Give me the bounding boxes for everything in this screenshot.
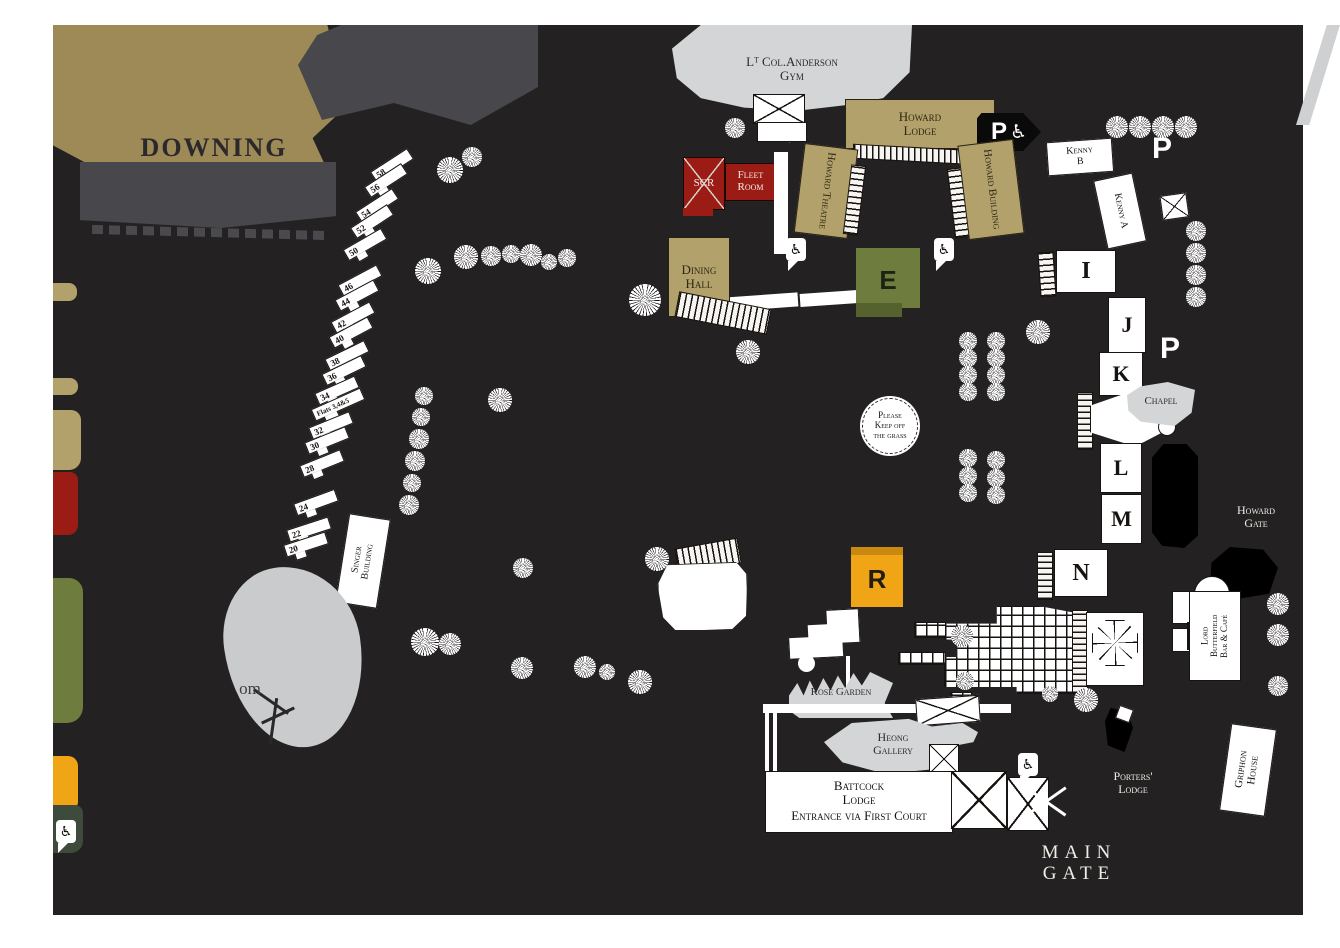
lamp-circle bbox=[798, 655, 815, 672]
tree bbox=[415, 258, 441, 284]
accessible-badge-e: ♿ bbox=[934, 238, 954, 261]
i-colonnade bbox=[1037, 251, 1056, 297]
tree bbox=[513, 558, 533, 578]
howard-lodge: Howard Lodge bbox=[845, 99, 995, 149]
parking-letter-mid: P bbox=[1160, 332, 1180, 366]
tree bbox=[558, 249, 576, 267]
tree bbox=[959, 449, 977, 467]
tree bbox=[488, 388, 512, 412]
path-vertical-double bbox=[765, 713, 777, 773]
butterfield: Lord Butterfield Bar & Café bbox=[1189, 591, 1241, 681]
tree bbox=[411, 628, 439, 656]
campus-map-page: DOWNING COLLEGE Lᵀ Col.Anderson Gym Howa… bbox=[0, 0, 1340, 948]
scr: SCR bbox=[683, 157, 725, 210]
tree bbox=[511, 657, 533, 679]
tree bbox=[959, 332, 977, 350]
tree bbox=[1186, 221, 1206, 241]
building-j: J bbox=[1108, 297, 1146, 353]
battcock-note: Entrance via First Court bbox=[775, 808, 943, 824]
chapel-label: Chapel bbox=[1127, 392, 1195, 412]
tree bbox=[959, 366, 977, 384]
tree bbox=[1186, 243, 1206, 263]
chip-tan-c bbox=[53, 410, 81, 470]
tree bbox=[736, 340, 760, 364]
scr-step bbox=[683, 208, 713, 216]
gym-label: Lᵀ Col.Anderson Gym bbox=[712, 52, 872, 86]
tree bbox=[987, 469, 1005, 487]
tree bbox=[1186, 265, 1206, 285]
tree bbox=[987, 332, 1005, 350]
tree bbox=[462, 147, 482, 167]
building-m: M bbox=[1101, 494, 1142, 544]
tree bbox=[1267, 593, 1289, 615]
tree bbox=[951, 625, 973, 647]
tree bbox=[959, 484, 977, 502]
accessible-badge-southwest: ♿ bbox=[56, 820, 76, 843]
tree bbox=[959, 349, 977, 367]
grass-sign-text: Please Keep off the grass bbox=[862, 398, 918, 454]
tree bbox=[599, 664, 615, 680]
tree bbox=[1042, 686, 1058, 702]
paved-arm-left bbox=[914, 622, 946, 638]
tree bbox=[725, 118, 745, 138]
howard-gate-label: Howard Gate bbox=[1216, 502, 1296, 532]
tree bbox=[412, 408, 430, 426]
fleet-room: Fleet Room bbox=[725, 163, 776, 201]
chip-gold bbox=[53, 756, 78, 808]
tree bbox=[454, 245, 478, 269]
building-l: L bbox=[1100, 443, 1142, 493]
tree bbox=[628, 670, 652, 694]
kenny-b: Kenny B bbox=[1046, 138, 1114, 177]
chip-tan-a bbox=[53, 283, 77, 301]
building-n: N bbox=[1054, 549, 1108, 597]
tree bbox=[987, 451, 1005, 469]
building-r-label: R bbox=[861, 557, 893, 601]
tree bbox=[409, 429, 429, 449]
gym-outbuilding-2 bbox=[757, 122, 807, 142]
tree bbox=[574, 656, 596, 678]
tree bbox=[645, 547, 669, 571]
silhouette-pond bbox=[1152, 444, 1198, 548]
tree bbox=[1268, 676, 1288, 696]
accessible-badge-gate: ♿ bbox=[1018, 753, 1038, 776]
tree bbox=[629, 284, 661, 316]
tree bbox=[959, 383, 977, 401]
tree bbox=[987, 366, 1005, 384]
gym-outbuilding bbox=[753, 94, 805, 124]
small-building-tr bbox=[1159, 192, 1189, 221]
howard-building: Howard Building bbox=[957, 139, 1024, 240]
tree bbox=[1026, 320, 1050, 344]
tree bbox=[481, 246, 501, 266]
tree bbox=[405, 451, 425, 471]
paved-arm-left2 bbox=[898, 652, 946, 665]
paddock-partial-text: om bbox=[230, 678, 270, 700]
tree bbox=[399, 495, 419, 515]
building-e-shadow bbox=[856, 303, 902, 317]
tree bbox=[415, 387, 433, 405]
tree bbox=[1267, 624, 1289, 646]
large-house bbox=[657, 561, 749, 632]
tree bbox=[1186, 287, 1206, 307]
chip-tan-b bbox=[53, 378, 78, 395]
porters-lodge-label: Porters' Lodge bbox=[1093, 768, 1173, 798]
tree bbox=[437, 157, 463, 183]
small-blocks bbox=[929, 744, 959, 774]
tree bbox=[541, 254, 557, 270]
tree bbox=[1129, 116, 1151, 138]
tree bbox=[1175, 116, 1197, 138]
tree bbox=[502, 245, 520, 263]
main-gate-label: MAIN GATE bbox=[1004, 852, 1154, 876]
tree bbox=[403, 474, 421, 492]
n-colonnade bbox=[1037, 552, 1053, 600]
tree bbox=[1106, 116, 1128, 138]
chip-olive bbox=[53, 578, 83, 723]
tree bbox=[987, 486, 1005, 504]
building-i: I bbox=[1056, 250, 1116, 293]
tree bbox=[987, 383, 1005, 401]
battcock-label: Battcock Lodge bbox=[775, 778, 943, 808]
gray-title-panel bbox=[80, 162, 336, 228]
octagon-roof bbox=[1092, 620, 1138, 666]
chip-red bbox=[53, 472, 78, 535]
porters-building-1 bbox=[951, 771, 1007, 829]
tree bbox=[956, 672, 974, 690]
path-building bbox=[915, 695, 981, 726]
tree bbox=[439, 633, 461, 655]
tree bbox=[520, 244, 542, 266]
building-e-label: E bbox=[866, 258, 910, 302]
tree bbox=[1074, 688, 1098, 712]
rose-garden-label: Rose Garden bbox=[794, 685, 888, 701]
accessible-badge-theatre: ♿ bbox=[786, 238, 806, 261]
tree bbox=[959, 467, 977, 485]
tree bbox=[987, 349, 1005, 367]
tree bbox=[1152, 116, 1174, 138]
